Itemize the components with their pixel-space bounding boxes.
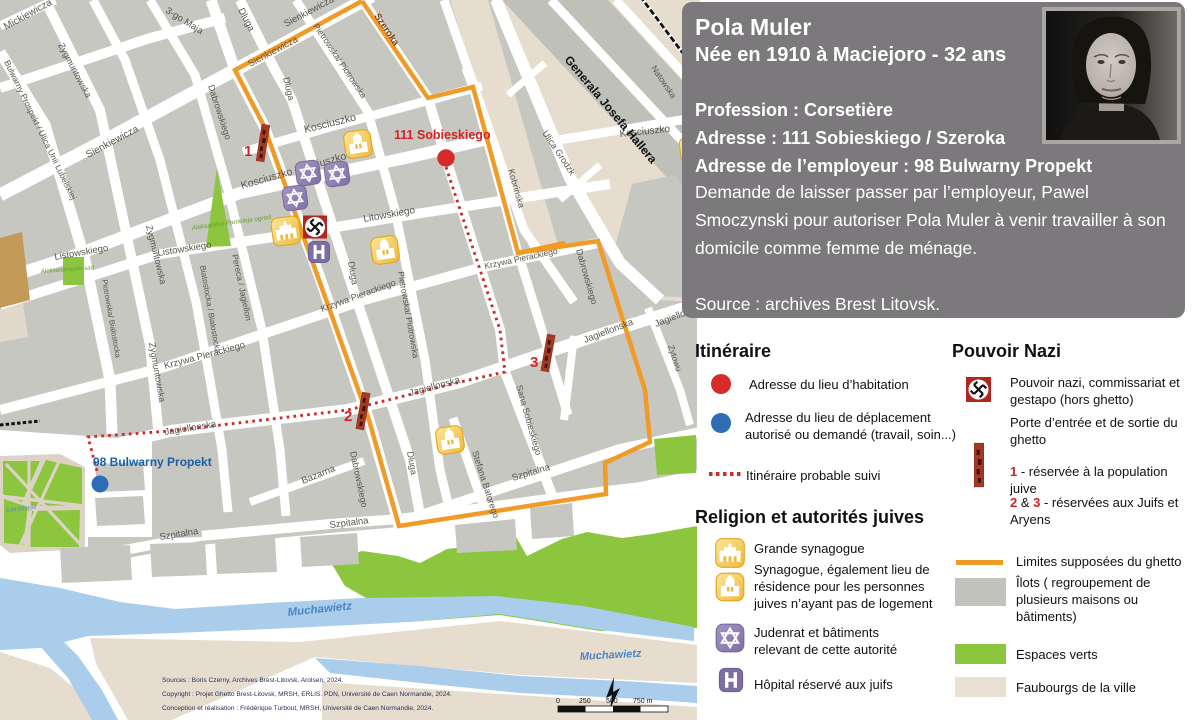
svg-text:750 m: 750 m: [633, 698, 653, 705]
svg-text:Conception et réalisation : F: Conception et réalisation : Frédérique T…: [162, 705, 433, 712]
svg-text:0: 0: [556, 698, 560, 705]
svg-text:250: 250: [579, 698, 591, 705]
svg-text:Sources : Boris Czerny, Arch: Sources : Boris Czerny, Archives Brest-L…: [162, 677, 343, 684]
svg-text:2: 2: [344, 408, 352, 425]
svg-text:500: 500: [606, 698, 618, 705]
svg-text:1: 1: [244, 143, 252, 160]
svg-text:98 Bulwarny Propekt: 98 Bulwarny Propekt: [93, 455, 212, 469]
svg-text:3: 3: [530, 354, 538, 371]
svg-text:111 Sobieskiego: 111 Sobieskiego: [394, 128, 491, 142]
svg-text:Copyright : Projet Ghetto Bre: Copyright : Projet Ghetto Brest-Litovsk,…: [162, 691, 452, 698]
